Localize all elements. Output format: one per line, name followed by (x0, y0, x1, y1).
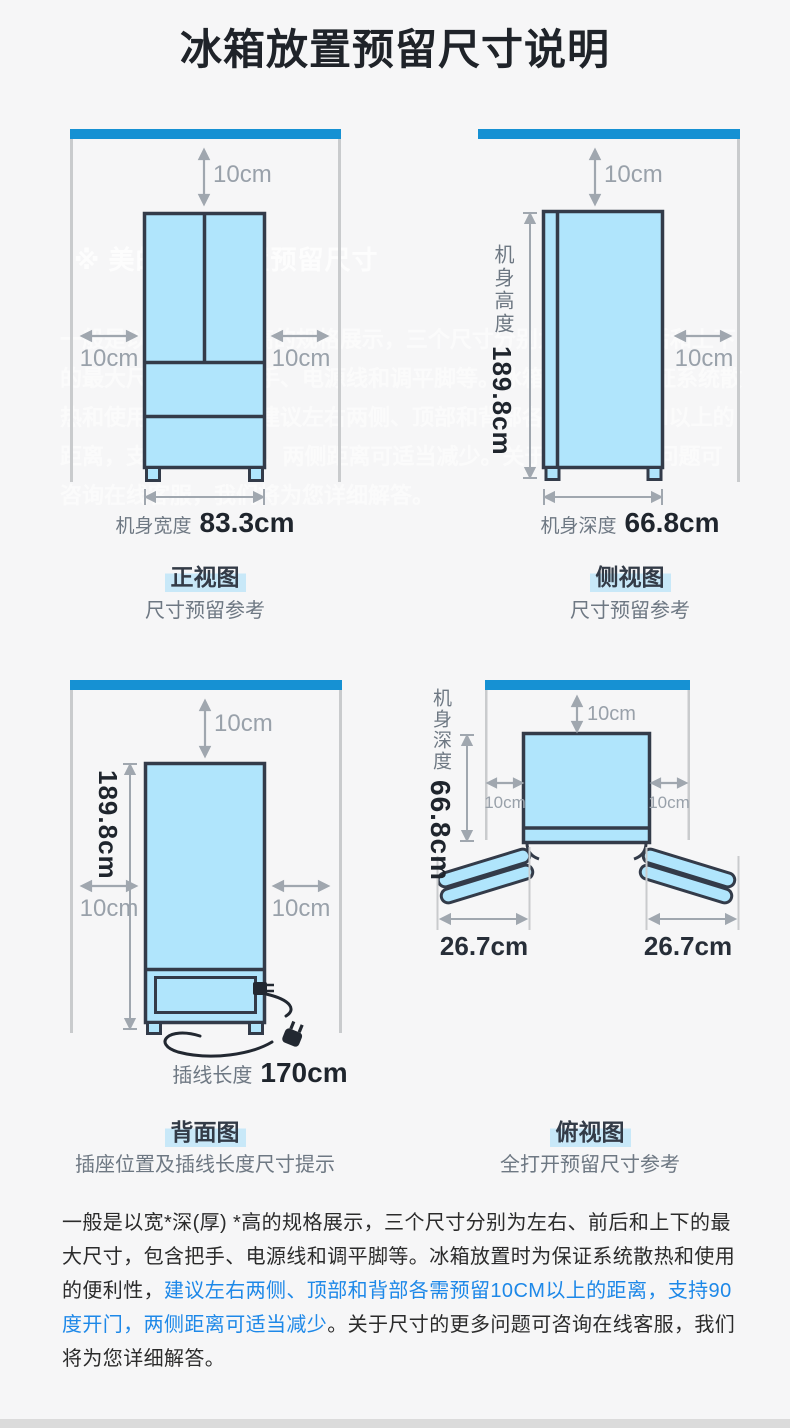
side-right-clearance-label: 10cm (669, 345, 739, 373)
topview-caption: 俯视图 (440, 1113, 740, 1147)
topview-depth-value: 66.8cm (425, 772, 456, 881)
front-view-name: 正视图 (165, 558, 246, 592)
cord-length-value: 170cm (260, 1057, 347, 1088)
front-width-label: 机身宽度 (116, 516, 192, 537)
door-right-dimension: 26.7cm (618, 931, 758, 962)
cord-length-caption: 插线长度170cm (95, 1057, 425, 1089)
front-left-clearance-label: 10cm (74, 345, 144, 373)
side-height-label: 机身高度 (491, 244, 513, 336)
side-view-name: 侧视图 (590, 558, 671, 592)
side-view-caption: 侧视图 (480, 558, 780, 592)
back-view-name: 背面图 (165, 1113, 246, 1147)
back-height-caption: 189.8cm (92, 770, 123, 970)
topview-depth-label: 机身深度 (430, 688, 451, 772)
topview-name: 俯视图 (550, 1113, 631, 1147)
back-view-note: 插座位置及插线长度尺寸提示 (60, 1148, 350, 1177)
back-top-clearance-label: 10cm (214, 710, 273, 738)
front-width-caption: 机身宽度83.3cm (60, 507, 350, 539)
side-height-value: 189.8cm (487, 336, 517, 456)
text-layer: 冰箱放置预留尺寸说明 10cm 10cm 10cm 机身宽度83.3cm 正视图… (0, 0, 790, 1428)
front-view-note: 尺寸预留参考 (60, 594, 350, 623)
side-view-note: 尺寸预留参考 (480, 594, 780, 623)
topview-depth-caption: 机身深度66.8cm (424, 688, 456, 898)
back-height-value: 189.8cm (93, 770, 123, 880)
bottom-divider-strip (0, 1419, 790, 1428)
cord-length-label: 插线长度 (172, 1065, 252, 1087)
side-height-caption: 机身高度189.8cm (486, 244, 517, 464)
footer-paragraph: 一般是以宽*深(厚) *高的规格展示，三个尺寸分别为左右、前后和上下的最大尺寸，… (62, 1206, 746, 1376)
back-right-clearance-label: 10cm (266, 895, 336, 923)
topview-top-clearance-label: 10cm (587, 703, 636, 726)
front-right-clearance-label: 10cm (266, 345, 336, 373)
topview-right-clearance-label: 10cm (634, 793, 704, 813)
front-view-caption: 正视图 (60, 558, 350, 592)
front-width-value: 83.3cm (200, 507, 295, 538)
topview-note: 全打开预留尺寸参考 (440, 1148, 740, 1177)
side-depth-label: 机身深度 (541, 516, 617, 537)
back-view-caption: 背面图 (60, 1113, 350, 1147)
side-depth-caption: 机身深度66.8cm (475, 507, 785, 539)
side-top-clearance-label: 10cm (604, 161, 663, 189)
side-depth-value: 66.8cm (625, 507, 720, 538)
topview-left-clearance-label: 10cm (470, 793, 540, 813)
front-top-clearance-label: 10cm (213, 161, 272, 189)
page-title: 冰箱放置预留尺寸说明 (0, 16, 790, 77)
infographic-page: ※ 美的冰箱放置预留尺寸 一般是以宽*深(厚) *高的规格展示，三个尺寸分别为左… (0, 0, 790, 1428)
door-left-dimension: 26.7cm (414, 931, 554, 962)
